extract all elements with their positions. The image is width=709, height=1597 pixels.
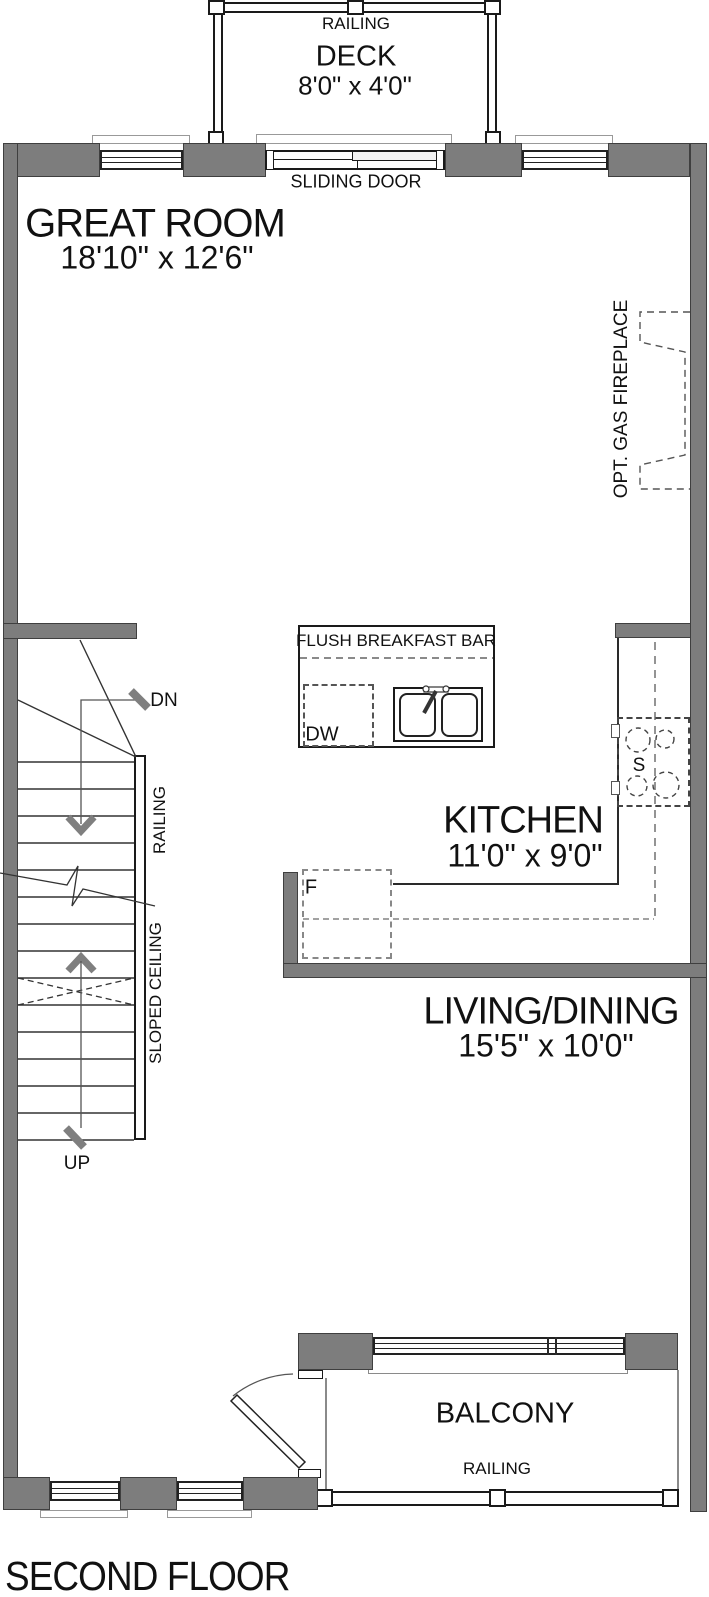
- wall-left: [3, 143, 18, 1510]
- balcony-edge-left: [325, 1378, 327, 1492]
- deck-post: [484, 0, 501, 15]
- wall-stub-stairs: [3, 623, 137, 639]
- wall-balcony-right-block: [625, 1333, 678, 1370]
- sliding-door-panel: [273, 159, 358, 169]
- wall-bottom: [243, 1477, 318, 1510]
- sliding-door-jamb: [436, 150, 444, 170]
- balcony-railing-label: RAILING: [463, 1459, 531, 1479]
- dn-label: DN: [150, 690, 177, 712]
- window-great-room-right: [522, 150, 608, 170]
- window-mullion: [547, 1337, 549, 1355]
- up-label: UP: [64, 1153, 90, 1175]
- breakfast-bar-label: FLUSH BREAKFAST BAR: [296, 631, 496, 651]
- up-tick-icon: [66, 1128, 84, 1147]
- stair-railing: [134, 755, 146, 1140]
- deck-label: DECK: [316, 41, 397, 74]
- kitchen-label: KITCHEN: [443, 800, 603, 843]
- up-arrow-icon: [68, 957, 94, 971]
- dn-tick-icon: [131, 691, 148, 708]
- deck-railing-left: [213, 10, 223, 136]
- balcony-door-arc: [233, 1374, 293, 1396]
- wall-bottom-corner: [3, 1477, 50, 1510]
- wall-top-right-corner: [608, 143, 690, 177]
- stair-treads: [18, 762, 134, 1140]
- balcony-post: [662, 1489, 679, 1507]
- dishwasher-label: DW: [305, 724, 338, 747]
- stove-tick: [611, 781, 620, 795]
- balcony-door-jamb: [298, 1370, 323, 1379]
- fireplace-outline: [640, 312, 690, 489]
- window-sill: [92, 135, 190, 144]
- window-mullion: [555, 1337, 557, 1355]
- living-dining-dims: 15'5" x 10'0": [458, 1028, 634, 1065]
- wall-top: [445, 143, 522, 177]
- wall-stub-kitchen: [615, 623, 691, 638]
- window-sill: [167, 1510, 252, 1518]
- sink-bowl-right: [441, 693, 478, 737]
- wall-kitchen-bottom: [283, 963, 707, 978]
- deck-post: [347, 0, 364, 15]
- wall-right: [690, 143, 707, 1512]
- balcony-label: BALCONY: [436, 1398, 575, 1431]
- stair-railing-label: RAILING: [150, 786, 170, 854]
- floor-plan: RAILING DECK 8'0" x 4'0" SLIDING DOOR GR…: [0, 0, 709, 1597]
- wall-bottom: [120, 1477, 177, 1510]
- sliding-door-label: SLIDING DOOR: [290, 172, 421, 193]
- wall-stub-fridge: [283, 872, 298, 965]
- great-room-dims: 18'10" x 12'6": [60, 240, 253, 277]
- window-bottom-right: [177, 1481, 243, 1501]
- stove-tick: [611, 724, 620, 738]
- window-balcony: [373, 1337, 625, 1355]
- sloped-ceiling-label: SLOPED CEILING: [146, 922, 166, 1064]
- window-sill: [40, 1510, 128, 1518]
- balcony-post: [316, 1489, 333, 1507]
- window-bottom-left: [50, 1481, 120, 1501]
- counter-edge-bottom: [393, 883, 619, 885]
- wall-balcony-left-block: [298, 1333, 373, 1370]
- sink-bowl-left: [399, 693, 436, 737]
- balcony-door-leaf: [231, 1395, 305, 1468]
- stair-break-line: [0, 866, 155, 906]
- plan-title: SECOND FLOOR: [5, 1553, 289, 1597]
- deck-railing-right: [487, 10, 497, 136]
- sliding-door-panel: [352, 151, 437, 161]
- fireplace-label: OPT. GAS FIREPLACE: [611, 300, 633, 499]
- balcony-edge-right: [677, 1370, 679, 1492]
- deck-post: [208, 0, 225, 15]
- dn-arrow-icon: [68, 817, 94, 831]
- balcony-post: [489, 1489, 506, 1507]
- sloped-ceiling-x: [18, 978, 134, 1005]
- balcony-window-sill: [368, 1353, 628, 1374]
- stove-box: [617, 717, 690, 807]
- stair-dn-path: [81, 700, 140, 824]
- stove-label: S: [633, 755, 646, 777]
- wall-top: [183, 143, 266, 177]
- window-sill: [515, 135, 613, 144]
- window-great-room-left: [100, 150, 183, 170]
- deck-dims: 8'0" x 4'0": [298, 71, 412, 102]
- stair-winders: [18, 640, 136, 757]
- fridge-label: F: [305, 877, 317, 900]
- sliding-door-sill: [256, 134, 452, 144]
- deck-railing-label: RAILING: [322, 14, 390, 34]
- kitchen-dims: 11'0" x 9'0": [447, 838, 602, 875]
